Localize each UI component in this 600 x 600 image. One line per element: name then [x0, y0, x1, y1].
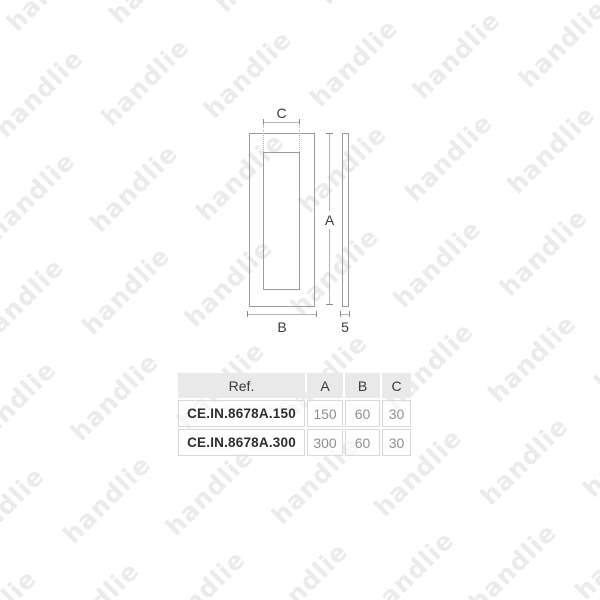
- catalog-image: handlie handlie handlie handlie handlie …: [0, 0, 600, 600]
- dim-label-b: B: [247, 319, 317, 335]
- dim-line-c: [263, 122, 300, 123]
- dim-tick: [316, 311, 317, 317]
- dim-label-a: A: [321, 211, 338, 229]
- dim-b-cell: 60: [345, 400, 380, 427]
- dim-line-b: [247, 314, 317, 315]
- table-header-row: Ref. A B C: [178, 373, 411, 398]
- dim-c-cell: 30: [382, 429, 411, 456]
- dim-c-cell: 30: [382, 400, 411, 427]
- header-ref: Ref.: [178, 373, 305, 398]
- dim-tick: [247, 311, 248, 317]
- side-view-plate: [342, 133, 349, 307]
- ref-cell: CE.IN.8678A.300: [178, 429, 305, 456]
- dim-label-c: C: [263, 105, 300, 121]
- dim-b-cell: 60: [345, 429, 380, 456]
- extension-line-right: [299, 124, 300, 152]
- header-c: C: [382, 373, 411, 398]
- dim-a-cell: 300: [307, 429, 343, 456]
- dim-a-cell: 150: [307, 400, 343, 427]
- header-a: A: [307, 373, 343, 398]
- spec-table: Ref. A B C CE.IN.8678A.150 150 60 30 CE.…: [176, 371, 413, 458]
- technical-drawing: C A B 5: [0, 0, 600, 600]
- dim-tick: [340, 311, 341, 317]
- table-row: CE.IN.8678A.300 300 60 30: [178, 429, 411, 456]
- ref-cell: CE.IN.8678A.150: [178, 400, 305, 427]
- header-b: B: [345, 373, 380, 398]
- dim-tick: [349, 311, 350, 317]
- extension-line-left: [263, 124, 264, 152]
- table-row: CE.IN.8678A.150 150 60 30: [178, 400, 411, 427]
- dim-tick: [326, 304, 333, 305]
- dim-label-thickness: 5: [335, 319, 355, 335]
- recess-outline: [263, 152, 300, 290]
- dim-tick: [326, 133, 333, 134]
